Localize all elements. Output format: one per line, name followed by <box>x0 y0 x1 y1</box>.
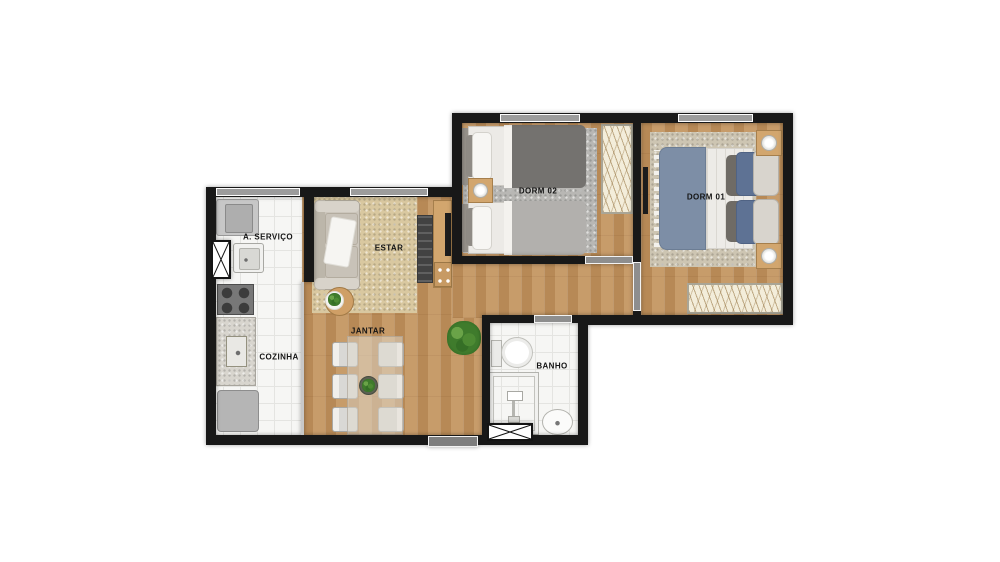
floor-plan: A. SERVIÇO COZINHA ESTAR JANTAR DORM 02 … <box>0 0 1000 562</box>
room-label-dorm01: DORM 01 <box>687 193 725 202</box>
room-label-estar: ESTAR <box>375 244 404 253</box>
room-label-jantar: JANTAR <box>351 327 385 336</box>
room-label-cozinha: COZINHA <box>259 353 298 362</box>
room-label-banho: BANHO <box>536 362 567 371</box>
room-label-servico: A. SERVIÇO <box>243 233 293 242</box>
room-label-dorm02: DORM 02 <box>519 187 557 196</box>
label-layer: A. SERVIÇO COZINHA ESTAR JANTAR DORM 02 … <box>0 0 1000 562</box>
